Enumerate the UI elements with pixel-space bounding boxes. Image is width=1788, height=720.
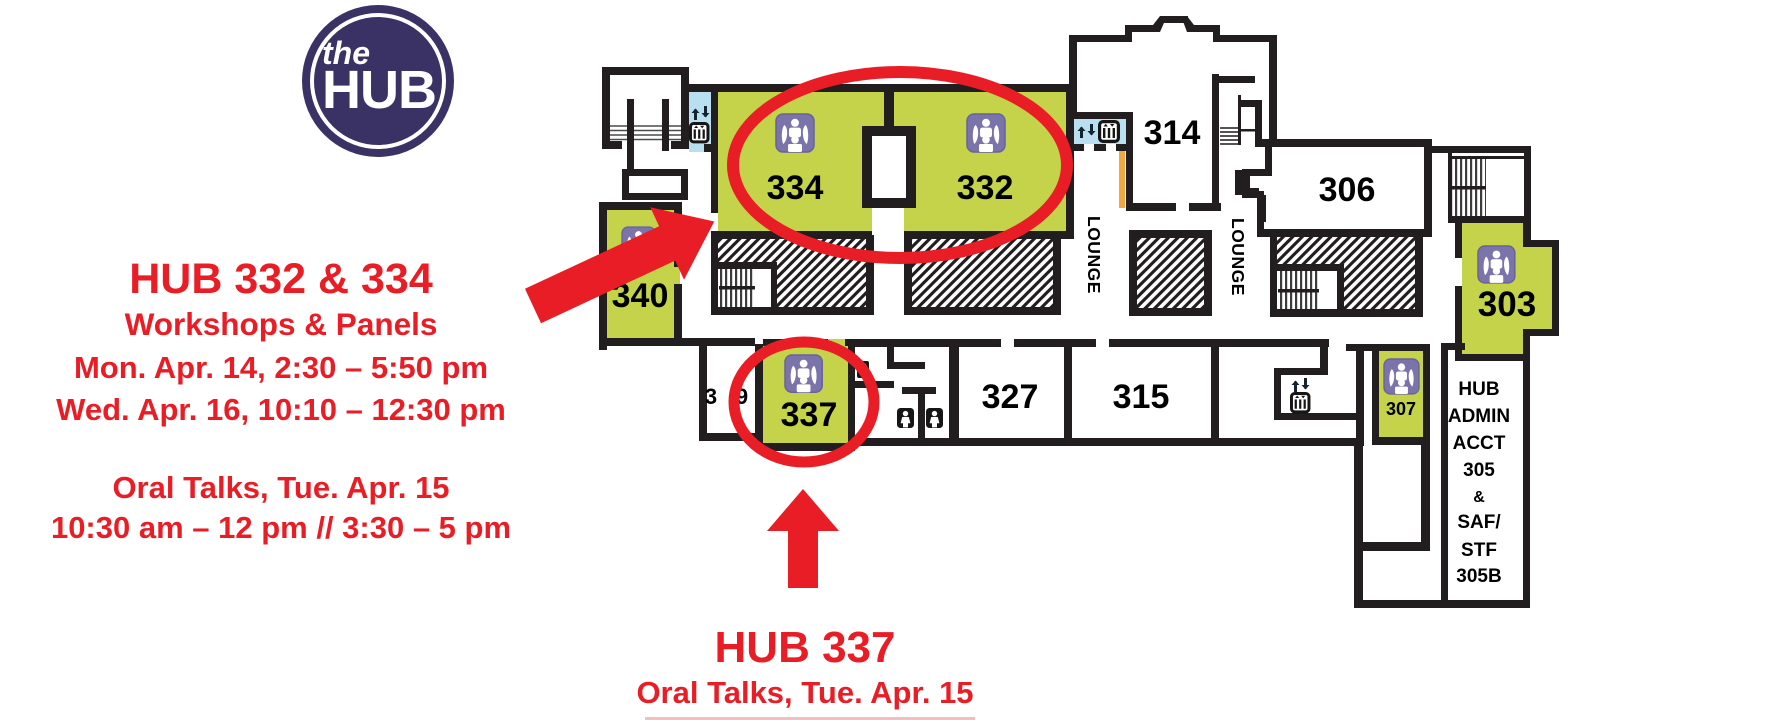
svg-text:HUB 337: HUB 337 xyxy=(715,623,896,672)
svg-text:327: 327 xyxy=(982,378,1039,416)
svg-text:306: 306 xyxy=(1319,171,1376,209)
svg-text:332: 332 xyxy=(957,169,1014,207)
svg-text:HUB 332 & 334: HUB 332 & 334 xyxy=(129,255,433,303)
svg-text:307: 307 xyxy=(1386,399,1416,419)
svg-text:314: 314 xyxy=(1144,114,1201,152)
svg-text:303: 303 xyxy=(1478,285,1536,324)
svg-text:Wed. Apr. 16, 10:10 – 12:30 pm: Wed. Apr. 16, 10:10 – 12:30 pm xyxy=(56,392,506,427)
svg-text:10:30 am – 12 pm // 3:30 – 5 p: 10:30 am – 12 pm // 3:30 – 5 pm xyxy=(51,510,511,545)
svg-text:HUB: HUB xyxy=(1458,379,1499,400)
svg-text:ACCT: ACCT xyxy=(1453,433,1506,454)
svg-text:Oral Talks, Tue. Apr. 15: Oral Talks, Tue. Apr. 15 xyxy=(636,675,973,710)
svg-text:Mon. Apr. 14, 2:30 – 5:50 pm: Mon. Apr. 14, 2:30 – 5:50 pm xyxy=(74,350,488,385)
svg-text:305B: 305B xyxy=(1456,566,1501,587)
svg-text:SAF/: SAF/ xyxy=(1457,512,1501,533)
svg-text:LOUNGE: LOUNGE xyxy=(1228,218,1248,296)
svg-text:315: 315 xyxy=(1113,378,1170,416)
svg-text:305: 305 xyxy=(1463,460,1495,481)
svg-text:&: & xyxy=(1473,489,1485,506)
svg-text:HUB: HUB xyxy=(322,60,436,120)
svg-text:STF: STF xyxy=(1461,540,1497,561)
svg-text:3: 3 xyxy=(705,384,717,409)
svg-text:ADMIN: ADMIN xyxy=(1448,406,1510,427)
svg-text:Oral Talks, Tue. Apr. 15: Oral Talks, Tue. Apr. 15 xyxy=(112,470,449,505)
svg-text:LOUNGE: LOUNGE xyxy=(1084,216,1104,294)
svg-text:337: 337 xyxy=(781,396,838,434)
svg-text:334: 334 xyxy=(767,169,824,207)
svg-text:Workshops & Panels: Workshops & Panels xyxy=(125,306,438,342)
